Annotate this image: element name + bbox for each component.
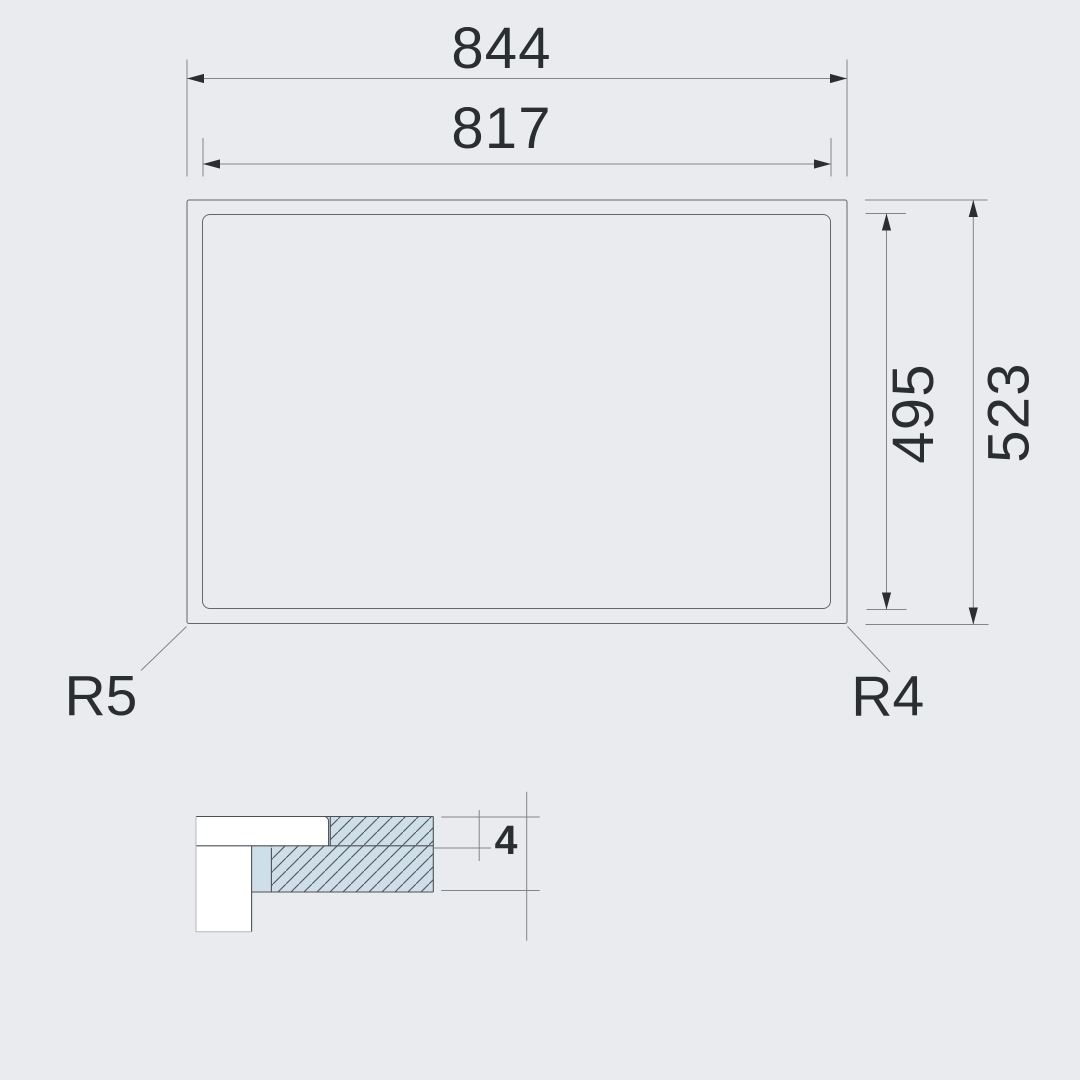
svg-text:495: 495 <box>881 363 946 463</box>
svg-text:844: 844 <box>451 16 551 81</box>
svg-text:R4: R4 <box>851 665 924 729</box>
svg-text:817: 817 <box>451 96 551 161</box>
svg-text:523: 523 <box>977 362 1042 462</box>
svg-text:R5: R5 <box>65 664 138 728</box>
